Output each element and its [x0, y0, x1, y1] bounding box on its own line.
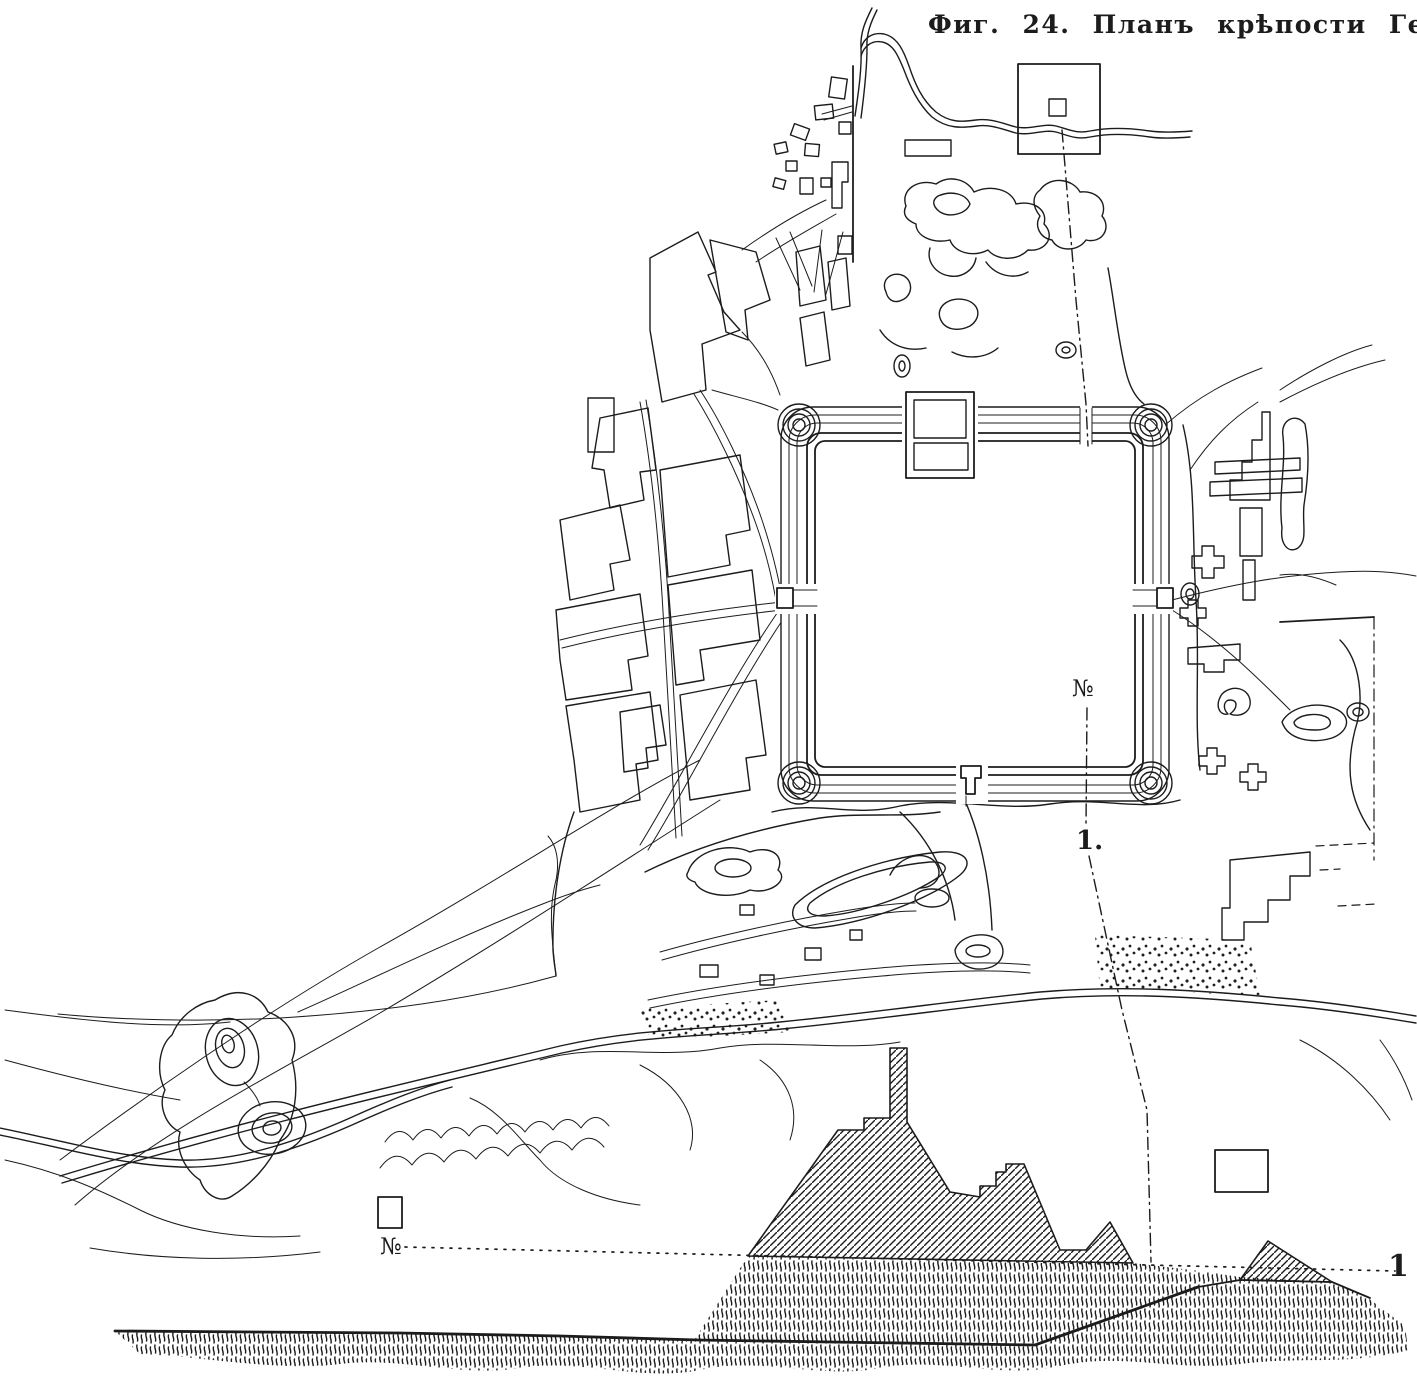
engraved-map-page: Фиг. 24. Планъ крѣпости Гератъ. № 1. № 1	[0, 0, 1417, 1386]
east-suburb	[1165, 345, 1416, 1120]
figure-caption: Фиг. 24. Планъ крѣпости Гератъ.	[928, 12, 1417, 37]
southeast-plot	[1215, 1150, 1268, 1192]
northeast-enclosure	[1018, 64, 1100, 154]
stipple-bank-2	[640, 1000, 790, 1040]
east-gate	[1133, 584, 1173, 614]
profile-ground-band	[115, 1256, 1408, 1373]
west-gate	[775, 584, 817, 614]
plan-section-end-label: 1.	[1076, 828, 1103, 854]
herat-fortress-plan-drawing	[0, 0, 1417, 1386]
river-and-north-settlement	[773, 8, 1192, 366]
north-lanes	[776, 230, 850, 366]
south-gate	[956, 762, 988, 806]
north-garden-contours	[880, 179, 1144, 404]
fortress	[775, 390, 1173, 806]
profile-small-peak	[1240, 1241, 1332, 1282]
long-building	[905, 140, 951, 156]
profile-start-label: №	[380, 1236, 402, 1259]
profile-end-label: 1	[1388, 1252, 1409, 1282]
citadel	[902, 390, 978, 480]
east-glacis-line	[1183, 425, 1200, 770]
stipple-bank	[1095, 935, 1260, 995]
profile-reference-box	[378, 1197, 402, 1228]
south-suburb	[645, 790, 1030, 1008]
plan-section-start-label: №	[1072, 678, 1094, 701]
isolated-walled-plot	[588, 398, 614, 452]
terrain-profile	[115, 1048, 1408, 1373]
profile-mountain	[748, 1048, 1133, 1263]
